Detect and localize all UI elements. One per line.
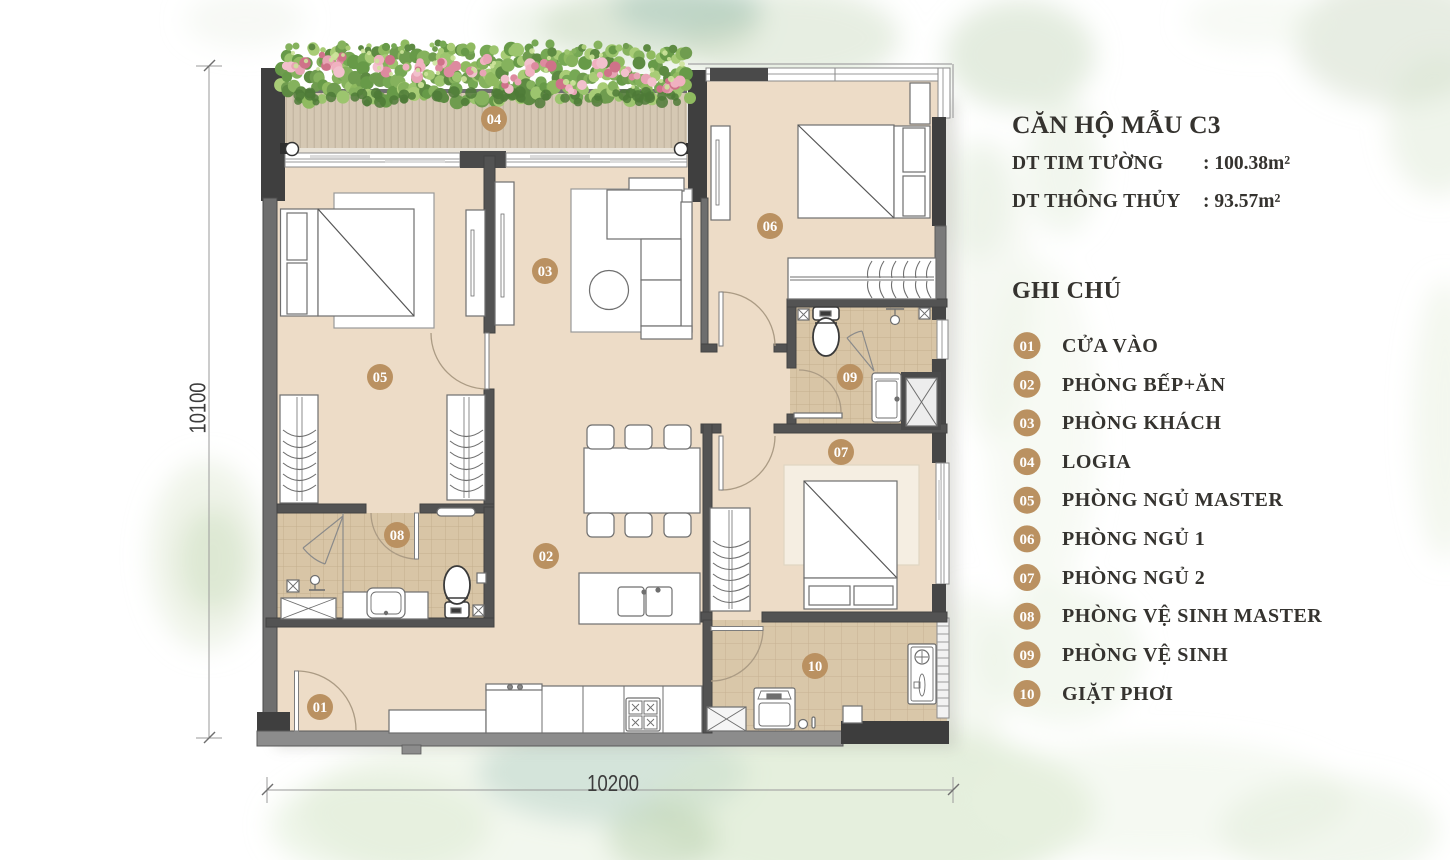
svg-text:03: 03 [1020, 416, 1035, 432]
svg-text:01: 01 [1020, 339, 1035, 355]
svg-text:05: 05 [373, 370, 388, 386]
svg-text:03: 03 [538, 264, 553, 280]
svg-text:09: 09 [1020, 648, 1035, 664]
svg-text:05: 05 [1020, 494, 1035, 510]
svg-text:07: 07 [834, 445, 849, 461]
svg-text:04: 04 [487, 112, 502, 128]
svg-text:08: 08 [1020, 610, 1035, 626]
svg-text:01: 01 [313, 700, 328, 716]
svg-text:10: 10 [1020, 687, 1035, 703]
svg-text:06: 06 [1020, 532, 1036, 548]
svg-text:08: 08 [390, 528, 405, 544]
svg-text:09: 09 [843, 370, 858, 386]
svg-text:10: 10 [808, 659, 823, 675]
svg-text:04: 04 [1020, 455, 1036, 471]
svg-text:07: 07 [1020, 571, 1036, 587]
svg-text:02: 02 [1020, 378, 1035, 394]
svg-text:02: 02 [539, 549, 554, 565]
svg-text:10200: 10200 [587, 770, 639, 796]
svg-text:06: 06 [763, 219, 778, 235]
svg-text:10100: 10100 [185, 383, 211, 434]
